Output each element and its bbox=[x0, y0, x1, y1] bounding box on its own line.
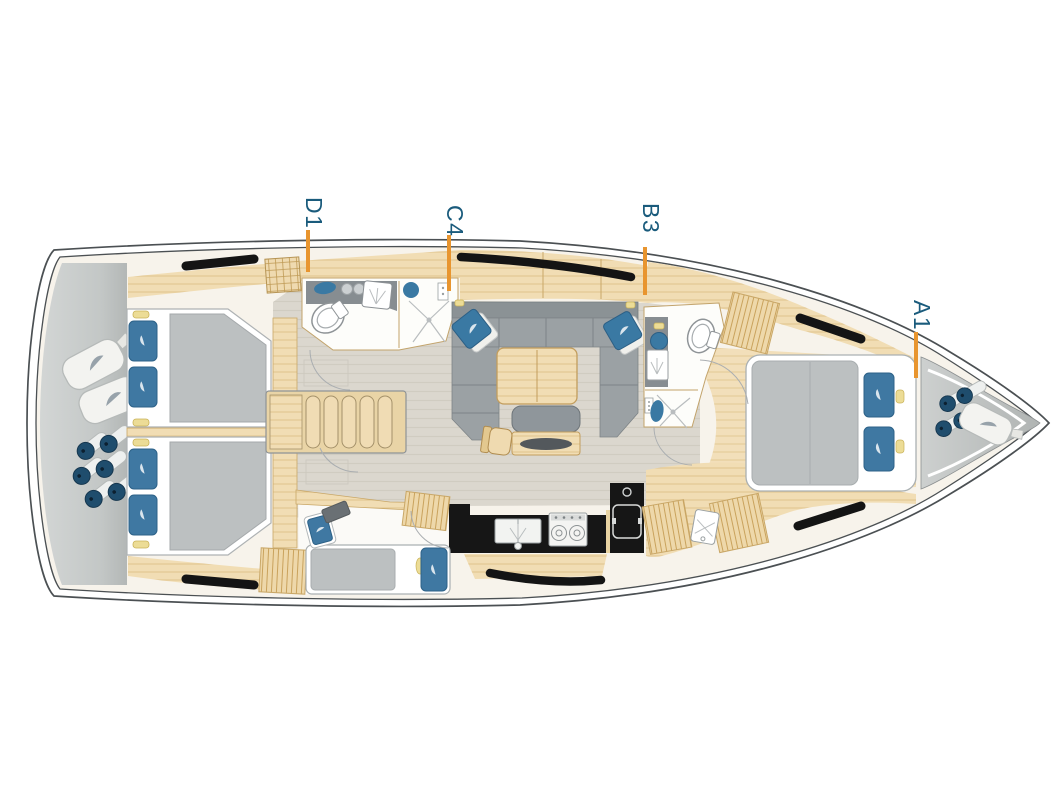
small-locker-icon bbox=[438, 283, 448, 300]
deck-plan-canvas: D1 C4 B3 A1 bbox=[0, 0, 1061, 795]
companionway-stairs bbox=[266, 391, 406, 453]
reading-light bbox=[455, 300, 464, 306]
tap-icon bbox=[342, 284, 353, 295]
fridge-unit bbox=[610, 483, 644, 553]
stove-icon bbox=[549, 513, 587, 546]
saloon-table bbox=[497, 348, 577, 404]
wardrobe-slats bbox=[402, 491, 450, 530]
reading-light bbox=[896, 440, 904, 453]
cabin-label-d1: D1 bbox=[301, 197, 327, 229]
island-bed bbox=[746, 355, 916, 491]
hatch-window-icon bbox=[186, 579, 254, 585]
reading-light bbox=[133, 311, 149, 318]
tv-screen bbox=[520, 438, 572, 450]
cabin-label-b3: B3 bbox=[638, 203, 664, 234]
aft-cabin-starboard bbox=[127, 437, 271, 555]
yacht-deck-plan: D1 C4 B3 A1 bbox=[0, 0, 1061, 795]
deck-slat-panel bbox=[642, 500, 692, 555]
reading-light bbox=[896, 390, 904, 403]
reading-light bbox=[626, 302, 635, 308]
side-chair bbox=[480, 426, 512, 456]
wardrobe-slats bbox=[259, 548, 307, 594]
chart-desk-icon bbox=[690, 509, 719, 545]
cabin-label-c4: C4 bbox=[442, 205, 468, 237]
aft-wardrobe bbox=[273, 448, 297, 548]
reading-light bbox=[133, 419, 149, 426]
cabin-a1 bbox=[746, 355, 916, 491]
stern-platform bbox=[40, 263, 127, 585]
cabin-label-a1: A1 bbox=[909, 300, 935, 331]
reading-light bbox=[133, 541, 149, 548]
saloon bbox=[451, 300, 650, 456]
shower-mat bbox=[403, 282, 419, 298]
reading-light bbox=[654, 323, 664, 329]
tv-bench-seat bbox=[512, 406, 580, 432]
aft-cabin-port bbox=[127, 309, 271, 427]
deck-locker-hatch bbox=[265, 257, 301, 293]
reading-light bbox=[133, 439, 149, 446]
single-berth bbox=[306, 545, 450, 594]
tv-cabinet bbox=[512, 432, 580, 455]
wet-head-d1 bbox=[302, 278, 458, 350]
counter-basin bbox=[651, 333, 668, 350]
